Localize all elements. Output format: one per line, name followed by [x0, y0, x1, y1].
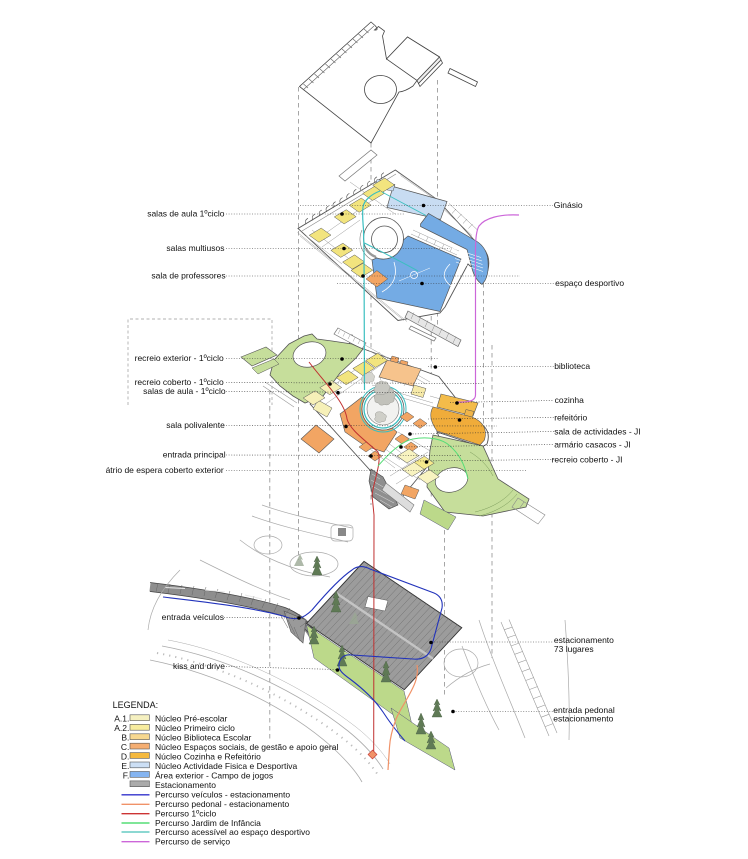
svg-text:kiss and drive: kiss and drive: [173, 661, 225, 671]
svg-text:sala de professores: sala de professores: [151, 271, 225, 281]
svg-text:Percurso pedonal - estacioname: Percurso pedonal - estacionamento: [155, 799, 289, 809]
svg-text:refeitório: refeitório: [554, 413, 587, 423]
svg-text:entrada veículos: entrada veículos: [162, 612, 224, 622]
svg-text:sala polivalente: sala polivalente: [166, 420, 225, 430]
svg-text:Estacionamento: Estacionamento: [155, 780, 216, 790]
svg-text:Percurso acessível ao espaço d: Percurso acessível ao espaço desportivo: [155, 827, 310, 837]
svg-text:Núcleo Primeiro ciclo: Núcleo Primeiro ciclo: [155, 723, 235, 733]
svg-text:recreio coberto - JI: recreio coberto - JI: [552, 455, 623, 465]
svg-text:LEGENDA:: LEGENDA:: [113, 700, 159, 710]
svg-text:Percurso 1ºciclo: Percurso 1ºciclo: [155, 809, 216, 819]
svg-text:cozinha: cozinha: [555, 395, 585, 405]
svg-text:Núcleo Espaços sociais, de ges: Núcleo Espaços sociais, de gestão e apoi…: [155, 742, 338, 752]
svg-text:F.: F.: [123, 771, 130, 781]
svg-text:B.: B.: [121, 733, 129, 743]
svg-text:73 lugares: 73 lugares: [554, 644, 594, 654]
svg-text:salas de aula - 1ºciclo: salas de aula - 1ºciclo: [143, 386, 226, 396]
svg-text:Núcleo Pré-escolar: Núcleo Pré-escolar: [155, 714, 227, 724]
svg-text:armário casacos - JI: armário casacos - JI: [554, 440, 631, 450]
svg-text:D.: D.: [121, 752, 130, 762]
svg-text:estacionamento: estacionamento: [553, 714, 613, 724]
svg-text:E.: E.: [121, 761, 129, 771]
svg-text:Núcleo Actividade Fisica e Des: Núcleo Actividade Fisica e Desportiva: [155, 761, 297, 771]
svg-text:C.: C.: [121, 742, 130, 752]
svg-text:A.1.: A.1.: [114, 714, 129, 724]
svg-text:Percurso veículos - estacionam: Percurso veículos - estacionamento: [155, 790, 290, 800]
svg-text:A.2.: A.2.: [114, 723, 129, 733]
svg-text:entrada principal: entrada principal: [163, 450, 226, 460]
svg-text:Percurso de serviço: Percurso de serviço: [155, 837, 230, 847]
svg-text:salas multiusos: salas multiusos: [166, 243, 224, 253]
svg-text:Núcleo Cozinha e Refeitório: Núcleo Cozinha e Refeitório: [155, 752, 261, 762]
svg-text:espaço desportivo: espaço desportivo: [555, 278, 624, 288]
svg-text:Área exterior - Campo de jogos: Área exterior - Campo de jogos: [155, 771, 273, 781]
svg-text:sala de actividades - JI: sala de actividades - JI: [554, 427, 640, 437]
svg-text:átrio de espera coberto exteri: átrio de espera coberto exterior: [106, 465, 224, 475]
svg-text:biblioteca: biblioteca: [554, 361, 590, 371]
svg-text:Ginásio: Ginásio: [554, 200, 583, 210]
svg-text:recreio exterior - 1ºciclo: recreio exterior - 1ºciclo: [135, 353, 224, 363]
svg-text:salas de aula 1ºciclo: salas de aula 1ºciclo: [147, 209, 225, 219]
svg-text:Núcleo Biblioteca Escolar: Núcleo Biblioteca Escolar: [155, 733, 252, 743]
